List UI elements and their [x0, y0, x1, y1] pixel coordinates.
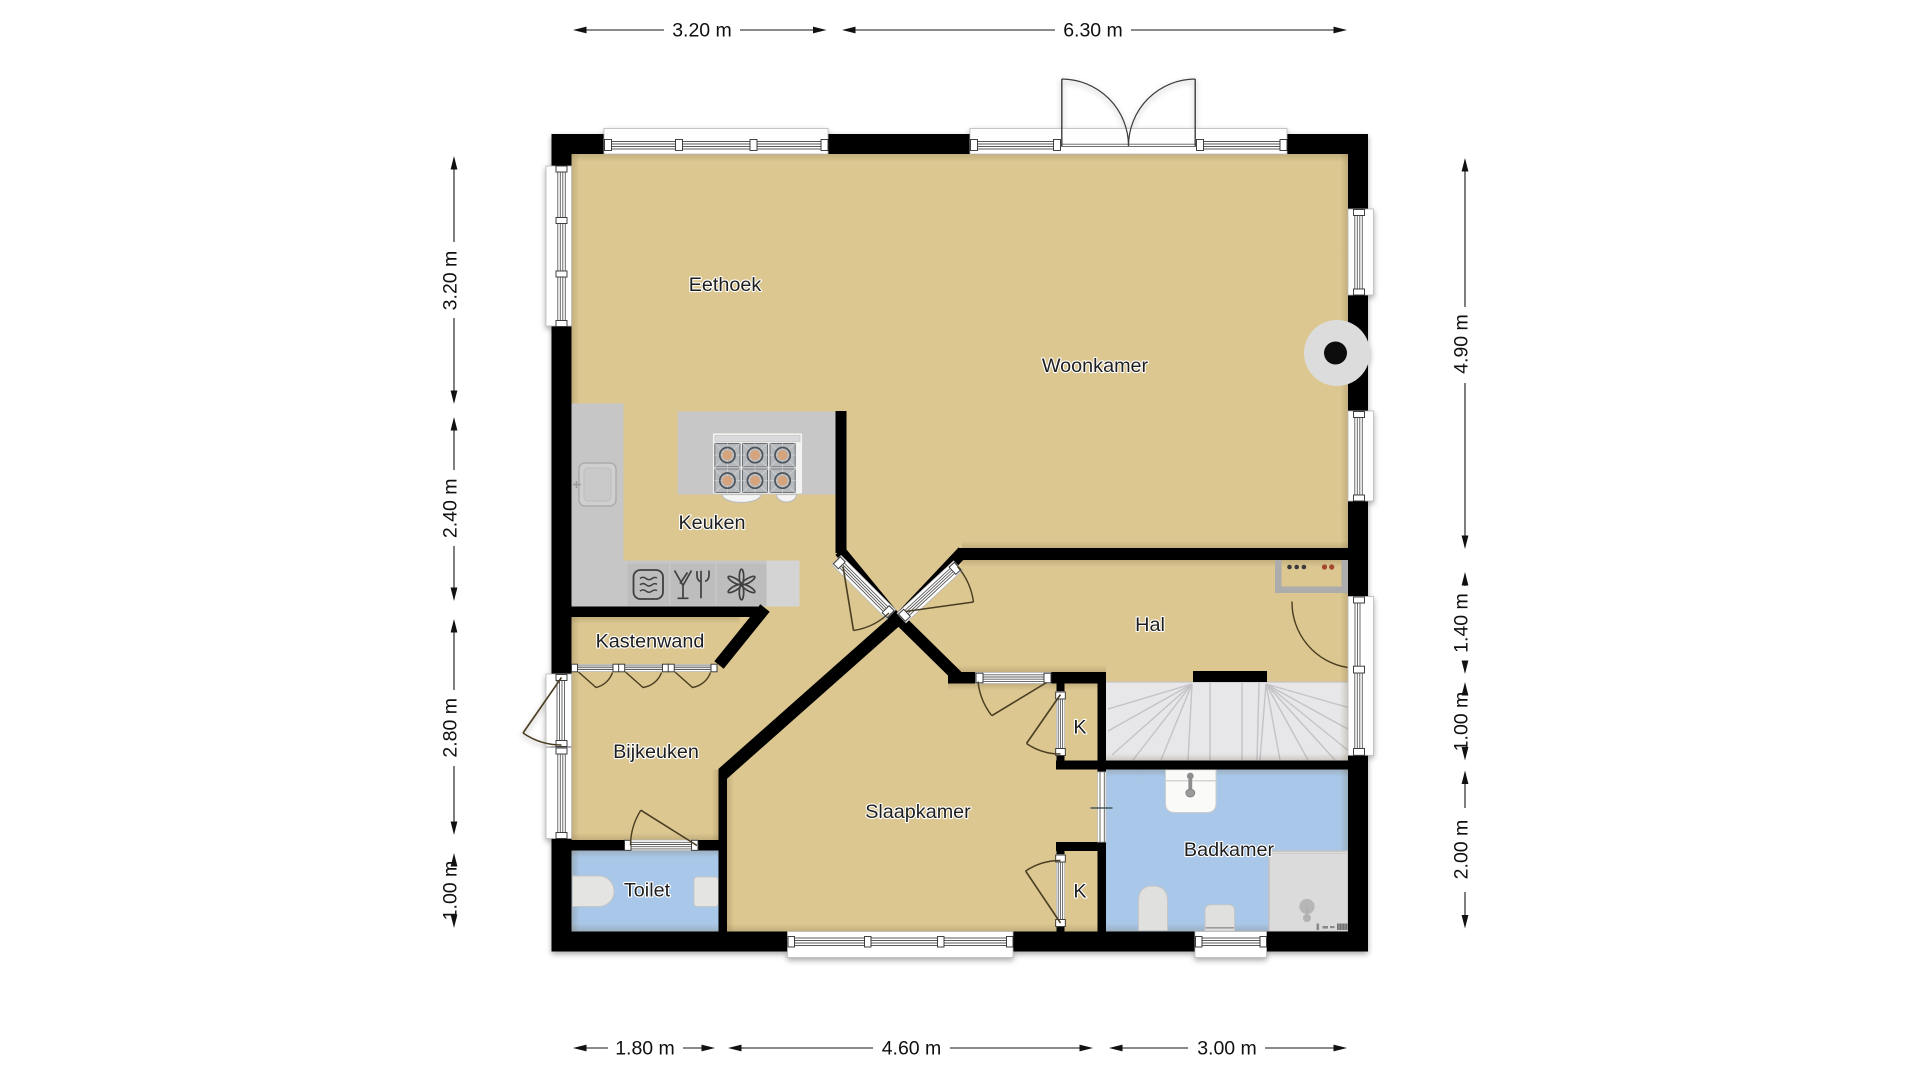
- svg-text:K: K: [1073, 881, 1086, 903]
- svg-text:3.20 m: 3.20 m: [440, 251, 462, 311]
- svg-text:Bijkeuken: Bijkeuken: [613, 741, 699, 763]
- svg-text:1.80 m: 1.80 m: [615, 1038, 675, 1060]
- svg-text:2.80 m: 2.80 m: [440, 698, 462, 758]
- svg-text:2.00 m: 2.00 m: [1451, 820, 1473, 880]
- svg-text:1.40 m: 1.40 m: [1451, 593, 1473, 653]
- svg-text:3.20 m: 3.20 m: [672, 20, 732, 42]
- svg-text:K: K: [1073, 717, 1086, 739]
- svg-text:4.90 m: 4.90 m: [1451, 314, 1473, 374]
- svg-text:Keuken: Keuken: [678, 512, 745, 534]
- svg-text:4.60 m: 4.60 m: [882, 1038, 942, 1060]
- svg-text:Kastenwand: Kastenwand: [596, 631, 705, 653]
- svg-text:Slaapkamer: Slaapkamer: [865, 801, 971, 823]
- svg-text:2.40 m: 2.40 m: [440, 478, 462, 538]
- svg-text:Eethoek: Eethoek: [689, 274, 762, 296]
- svg-text:1.00 m: 1.00 m: [1451, 692, 1473, 752]
- svg-text:1.00 m: 1.00 m: [440, 861, 462, 921]
- svg-text:Woonkamer: Woonkamer: [1042, 355, 1149, 377]
- svg-text:6.30 m: 6.30 m: [1063, 20, 1123, 42]
- svg-text:Toilet: Toilet: [624, 880, 671, 902]
- svg-text:Hal: Hal: [1135, 614, 1165, 636]
- svg-text:Badkamer: Badkamer: [1184, 839, 1275, 861]
- svg-text:3.00 m: 3.00 m: [1197, 1038, 1257, 1060]
